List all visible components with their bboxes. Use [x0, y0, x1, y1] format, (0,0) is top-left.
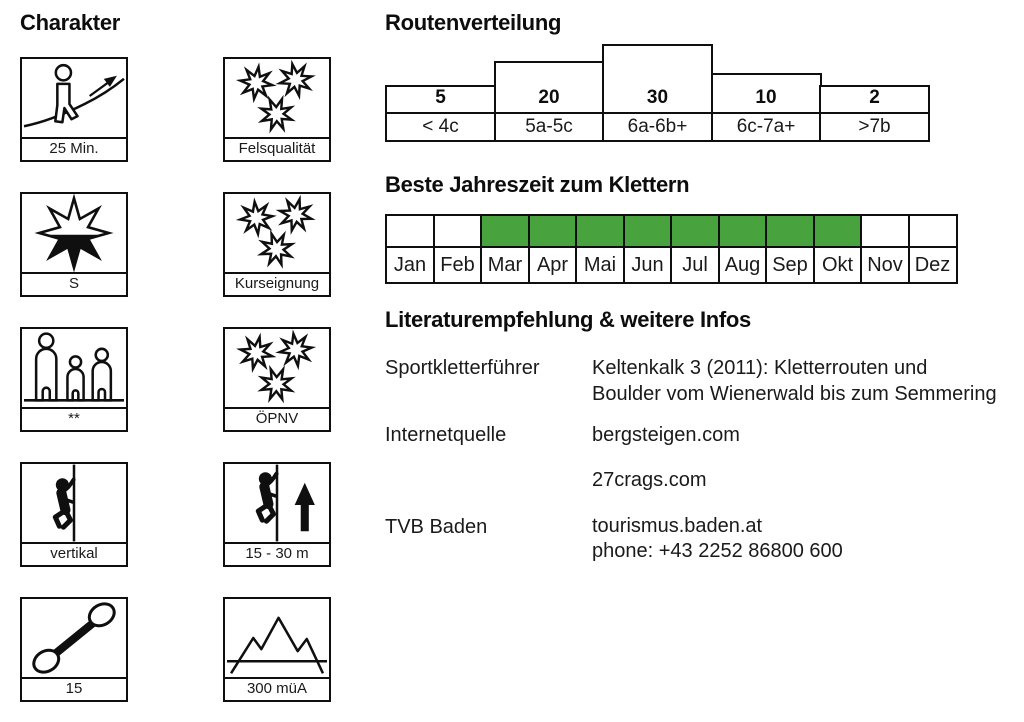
- bar-count: 5: [387, 86, 494, 112]
- charakter-box-quickdraws: 15: [20, 597, 128, 702]
- charakter-box-course-suitability: Kurseignung: [223, 192, 331, 297]
- internet-source-url-2: 27crags.com: [592, 467, 707, 493]
- month-label: Dez: [908, 246, 958, 284]
- grade-label: 5a-5c: [494, 111, 605, 142]
- mountains-icon: [225, 599, 329, 677]
- season-cell: [480, 214, 530, 248]
- grade-label: 6c-7a+: [711, 111, 822, 142]
- month-column-mai: Mai: [575, 214, 625, 284]
- literature-heading: Literaturempfehlung & weitere Infos: [385, 307, 751, 333]
- month-label: Mai: [575, 246, 625, 284]
- charakter-box-approach-time: 25 Min.: [20, 57, 128, 162]
- literature-row-tourism: TVB Baden tourismus.baden.at phone: +43 …: [385, 514, 843, 564]
- month-column-jul: Jul: [670, 214, 720, 284]
- three-stars-icon: [225, 329, 329, 407]
- route-distribution-column: 10 6c-7a+: [711, 73, 822, 143]
- quickdraw-icon: [22, 599, 126, 677]
- best-season-heading: Beste Jahreszeit zum Klettern: [385, 172, 689, 198]
- route-distribution-heading: Routenverteilung: [385, 10, 561, 36]
- season-cell: [765, 214, 815, 248]
- three-stars-icon: [225, 194, 329, 272]
- season-cell: [908, 214, 958, 248]
- guidebook-line-1: Keltenkalk 3 (2011): Kletterrouten und: [592, 355, 997, 381]
- literature-row-internet: Internetquelle bergsteigen.com: [385, 422, 740, 448]
- literature-row-label: Internetquelle: [385, 422, 592, 448]
- family-icon: [22, 329, 126, 407]
- tourism-phone: phone: +43 2252 86800 600: [592, 539, 843, 564]
- tourism-url: tourismus.baden.at: [592, 514, 843, 539]
- month-label: Jan: [385, 246, 435, 284]
- month-label: Jul: [670, 246, 720, 284]
- season-cell: [670, 214, 720, 248]
- month-label: Okt: [813, 246, 863, 284]
- season-cell: [860, 214, 910, 248]
- literature-row-label: [385, 467, 592, 493]
- literature-row-value: Keltenkalk 3 (2011): Kletterrouten und B…: [592, 355, 997, 407]
- month-column-apr: Apr: [528, 214, 578, 284]
- month-column-sep: Sep: [765, 214, 815, 284]
- bar-grade-5a-5c: 20: [494, 61, 605, 114]
- box-label-approach-time: 25 Min.: [22, 137, 126, 160]
- season-cell: [813, 214, 863, 248]
- month-label: Aug: [718, 246, 768, 284]
- month-label: Sep: [765, 246, 815, 284]
- season-cell: [433, 214, 483, 248]
- season-cell: [718, 214, 768, 248]
- season-calendar: Jan Feb Mar Apr Mai Jun Jul Aug Sep Okt …: [385, 214, 958, 284]
- month-label: Nov: [860, 246, 910, 284]
- month-column-jun: Jun: [623, 214, 673, 284]
- month-label: Mar: [480, 246, 530, 284]
- hiker-slope-icon: [22, 59, 126, 137]
- month-column-feb: Feb: [433, 214, 483, 284]
- bar-grade-lt4c: 5: [385, 85, 496, 114]
- bar-count: 2: [821, 86, 928, 112]
- season-cell: [623, 214, 673, 248]
- literature-row-label: Sportkletterführer: [385, 355, 592, 407]
- box-label-public-transport: ÖPNV: [225, 407, 329, 430]
- month-label: Feb: [433, 246, 483, 284]
- bar-count: 20: [496, 86, 603, 112]
- route-distribution-chart: 5 < 4c 20 5a-5c 30 6a-6b+ 10 6c-7a+ 2 >7…: [385, 43, 930, 142]
- route-distribution-column: 2 >7b: [819, 85, 930, 143]
- season-cell: [575, 214, 625, 248]
- month-column-jan: Jan: [385, 214, 435, 284]
- box-label-family-rating: **: [22, 407, 126, 430]
- three-stars-icon: [225, 59, 329, 137]
- climber-arrow-up-icon: [225, 464, 329, 542]
- box-label-altitude: 300 müA: [225, 677, 329, 700]
- month-label: Apr: [528, 246, 578, 284]
- charakter-grid: 25 Min. Felsqualität: [20, 57, 331, 702]
- box-label-rock-quality: Felsqualität: [225, 137, 329, 160]
- box-label-wall-angle: vertikal: [22, 542, 126, 565]
- charakter-box-wall-angle: vertikal: [20, 462, 128, 567]
- bar-count: 30: [604, 86, 711, 112]
- literature-row-guidebook: Sportkletterführer Keltenkalk 3 (2011): …: [385, 355, 997, 407]
- route-distribution-column: 20 5a-5c: [494, 61, 605, 143]
- box-label-course-suitability: Kurseignung: [225, 272, 329, 295]
- guidebook-line-2: Boulder vom Wienerwald bis zum Semmering: [592, 381, 997, 407]
- box-label-route-length: 15 - 30 m: [225, 542, 329, 565]
- season-cell: [528, 214, 578, 248]
- internet-source-url: bergsteigen.com: [592, 422, 740, 448]
- climber-wall-icon: [22, 464, 126, 542]
- half-filled-star-icon: [22, 194, 126, 272]
- tourism-contact: tourismus.baden.at phone: +43 2252 86800…: [592, 514, 843, 564]
- charakter-box-rock-quality: Felsqualität: [223, 57, 331, 162]
- charakter-box-altitude: 300 müA: [223, 597, 331, 702]
- month-label: Jun: [623, 246, 673, 284]
- bar-count: 10: [713, 86, 820, 112]
- bar-grade-6c-7aplus: 10: [711, 73, 822, 114]
- literature-row-label: TVB Baden: [385, 514, 592, 564]
- bar-grade-6a-6bplus: 30: [602, 44, 713, 114]
- month-column-okt: Okt: [813, 214, 863, 284]
- route-distribution-column: 30 6a-6b+: [602, 44, 713, 143]
- grade-label: >7b: [819, 111, 930, 142]
- box-label-quickdraws: 15: [22, 677, 126, 700]
- literature-row-internet-2: 27crags.com: [385, 467, 707, 493]
- charakter-heading: Charakter: [20, 10, 120, 36]
- month-column-mar: Mar: [480, 214, 530, 284]
- season-cell: [385, 214, 435, 248]
- charakter-box-public-transport: ÖPNV: [223, 327, 331, 432]
- charakter-box-orientation: S: [20, 192, 128, 297]
- grade-label: 6a-6b+: [602, 111, 713, 142]
- month-column-aug: Aug: [718, 214, 768, 284]
- charakter-box-family-rating: **: [20, 327, 128, 432]
- bar-grade-gt7b: 2: [819, 85, 930, 114]
- month-column-nov: Nov: [860, 214, 910, 284]
- charakter-box-route-length: 15 - 30 m: [223, 462, 331, 567]
- box-label-orientation: S: [22, 272, 126, 295]
- grade-label: < 4c: [385, 111, 496, 142]
- route-distribution-column: 5 < 4c: [385, 85, 496, 143]
- month-column-dez: Dez: [908, 214, 958, 284]
